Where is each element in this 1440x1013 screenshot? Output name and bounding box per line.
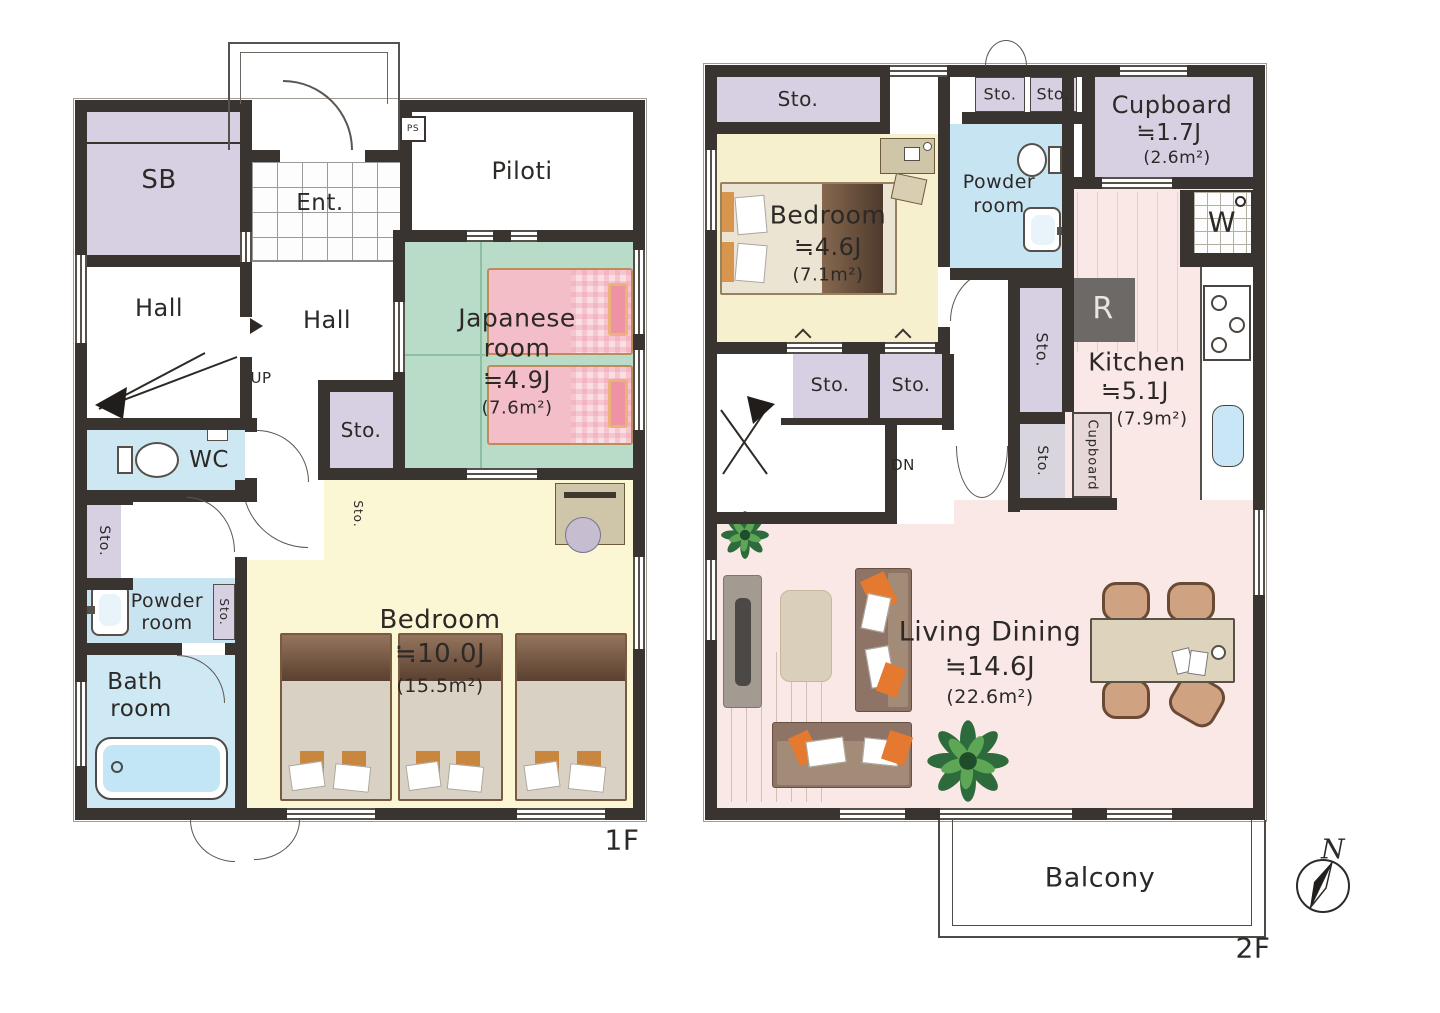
window: [840, 808, 905, 820]
window: [705, 150, 717, 230]
japanese-area: (7.6m²): [482, 398, 553, 419]
window: [517, 808, 605, 820]
sliding-door: [885, 342, 935, 354]
room-label-sto: Sto.: [1033, 332, 1052, 367]
floor2-plan: Sto. Sto. Sto. Bedroom ≒4.6J (7.1m²) Pow…: [705, 65, 1265, 820]
dn-label: DN: [891, 456, 915, 474]
wall: [1062, 276, 1074, 412]
sofa-icon: [772, 722, 912, 788]
room-label-cupboard-v: Cupboard: [1085, 419, 1100, 490]
room-label-living: Living Dining: [899, 617, 1082, 648]
dining-table-icon: [1090, 618, 1235, 683]
cupboard-size: ≒1.7J: [1136, 120, 1201, 146]
room-label-bath2: room: [110, 696, 172, 722]
wall: [1180, 255, 1253, 267]
dining-chair-icon: [1167, 582, 1215, 622]
floor2-label: 2F: [1236, 932, 1271, 965]
room-label-bedroom2: Bedroom: [770, 201, 887, 230]
wall: [235, 557, 247, 808]
wall: [87, 418, 257, 430]
door-swing-icon: [985, 40, 1027, 66]
room-label-sto: Sto.: [96, 525, 112, 556]
door-swing-icon: [254, 820, 300, 860]
window: [1253, 510, 1265, 595]
room-label-powder2b: room: [973, 195, 1024, 217]
window: [1107, 808, 1172, 820]
door-opening: [938, 267, 950, 327]
sink-icon: [1023, 207, 1061, 252]
room-label-sto: Sto.: [217, 598, 231, 625]
stairs-arrow-icon: [87, 345, 245, 418]
room-label-sto: Sto.: [811, 374, 850, 396]
wall: [252, 150, 280, 162]
washer-label: W: [1208, 206, 1236, 239]
room-label-japanese: Japanese: [458, 304, 576, 333]
bed-icon: [280, 633, 392, 801]
room-label-wc: WC: [189, 447, 229, 473]
room-label-sto: Sto.: [351, 500, 365, 527]
room-label-hall2: Hall: [303, 306, 351, 334]
wall: [717, 512, 897, 524]
dining-chair-icon: [1102, 679, 1150, 719]
window: [633, 250, 645, 334]
floor1-label: 1F: [605, 824, 640, 857]
wall: [240, 357, 252, 418]
door-opening: [245, 432, 257, 478]
tatami-line: [405, 354, 485, 356]
wall: [87, 643, 182, 655]
wall: [87, 493, 133, 505]
wall: [1082, 65, 1095, 189]
sliding-door: [787, 342, 842, 354]
sliding-door: [393, 302, 405, 372]
room-label-sb: SB: [141, 165, 176, 195]
room-label-cupboard: Cupboard: [1112, 91, 1233, 119]
wall: [318, 468, 467, 480]
balcony-door: [940, 808, 1072, 820]
wall: [318, 380, 405, 392]
fridge-label: R: [1092, 292, 1113, 327]
door-swing-icon: [190, 820, 235, 862]
window: [287, 808, 375, 820]
room-label-sto: Sto.: [778, 87, 819, 111]
window: [890, 65, 947, 77]
tv-stand-icon: [723, 575, 762, 708]
wall: [537, 468, 633, 480]
canopy-side: [228, 104, 230, 150]
dining-chair-icon: [1102, 582, 1150, 622]
window: [705, 560, 717, 640]
room-label-japanese2: room: [484, 334, 551, 363]
stairs-arrow-icon: [717, 354, 781, 512]
wall: [1008, 276, 1020, 512]
room-label-piloti: Piloti: [491, 157, 552, 185]
room-label-sto: Sto.: [892, 374, 931, 396]
wall: [880, 77, 890, 134]
window: [633, 557, 645, 649]
wall: [1020, 412, 1065, 424]
wall: [938, 65, 950, 267]
door-swing-icon: [187, 497, 235, 552]
living-size: ≒14.6J: [945, 652, 1035, 682]
wall: [781, 418, 954, 425]
window: [75, 255, 87, 343]
wall: [240, 100, 252, 162]
wall: [1008, 498, 1117, 510]
bed-icon: [515, 633, 627, 801]
opening-arrow-icon: [250, 318, 263, 334]
bedroom-area: (15.5m²): [396, 675, 483, 697]
wall: [318, 380, 330, 480]
balcony-label: Balcony: [1045, 863, 1156, 894]
toilet-icon: [117, 442, 181, 478]
wall: [87, 255, 240, 267]
wall: [868, 354, 880, 418]
room-label-hall: Hall: [135, 294, 183, 322]
wall: [245, 418, 257, 432]
wall: [235, 480, 247, 492]
wall: [225, 643, 235, 655]
room-label-powder2: Powder: [963, 171, 1036, 193]
window: [511, 230, 537, 242]
chair-icon: [565, 517, 601, 553]
room-label-powder2: room: [141, 612, 192, 634]
rug: [780, 590, 832, 682]
plant-icon: [922, 715, 1014, 807]
kitchen-area: (7.9m²): [1117, 409, 1188, 430]
room-label-powder: Powder: [131, 590, 204, 612]
wall: [393, 230, 405, 302]
wall: [938, 327, 950, 342]
cupboard-area: (2.6m²): [1143, 148, 1210, 168]
wall: [87, 578, 133, 590]
wall: [1180, 190, 1192, 255]
up-label: UP: [250, 369, 271, 387]
room-label-bath: Bath: [107, 669, 162, 695]
window: [633, 350, 645, 430]
window: [1120, 65, 1187, 77]
canopy-side: [398, 104, 400, 150]
kitchen-sink-icon: [1206, 395, 1251, 479]
wall: [240, 157, 252, 232]
wall: [240, 262, 252, 317]
room-label-sto: Sto.: [983, 85, 1016, 104]
door-swing-icon: [956, 446, 982, 498]
desk-icon: [880, 138, 935, 174]
room-label-sto: Sto.: [1036, 85, 1069, 104]
bedroom2-area: (7.1m²): [793, 265, 864, 286]
stove-icon: [1203, 285, 1251, 361]
window: [75, 682, 87, 766]
kitchen-size: ≒5.1J: [1101, 377, 1169, 405]
room-label-sto: Sto.: [1034, 445, 1050, 476]
living-area: (22.6m²): [946, 686, 1033, 708]
floor-plan: SB Hall Ent. Hall Piloti PS Japanese roo…: [0, 0, 1440, 1013]
wall: [717, 122, 890, 134]
floor1-plan: SB Hall Ent. Hall Piloti PS Japanese roo…: [75, 100, 645, 820]
sliding-door: [467, 468, 537, 480]
room-label-entrance: Ent.: [296, 190, 343, 216]
ps-label: PS: [407, 124, 419, 134]
bedroom2-size: ≒4.6J: [794, 233, 862, 261]
door-swing-icon: [982, 446, 1008, 498]
sink-icon: [91, 584, 129, 636]
room-label-bedroom: Bedroom: [379, 605, 500, 635]
bathtub-icon: [95, 737, 228, 800]
compass-north-label: N: [1321, 835, 1345, 866]
door-opening: [240, 232, 252, 262]
sb-closet-line: [87, 142, 240, 144]
japanese-size: ≒4.9J: [483, 366, 551, 394]
window: [467, 230, 493, 242]
bedroom-size: ≒10.0J: [395, 639, 485, 669]
room-label-sto: Sto.: [341, 418, 382, 442]
room-label-kitchen: Kitchen: [1088, 348, 1185, 377]
sliding-door: [1102, 177, 1172, 189]
stairs-down-run: [781, 425, 885, 512]
